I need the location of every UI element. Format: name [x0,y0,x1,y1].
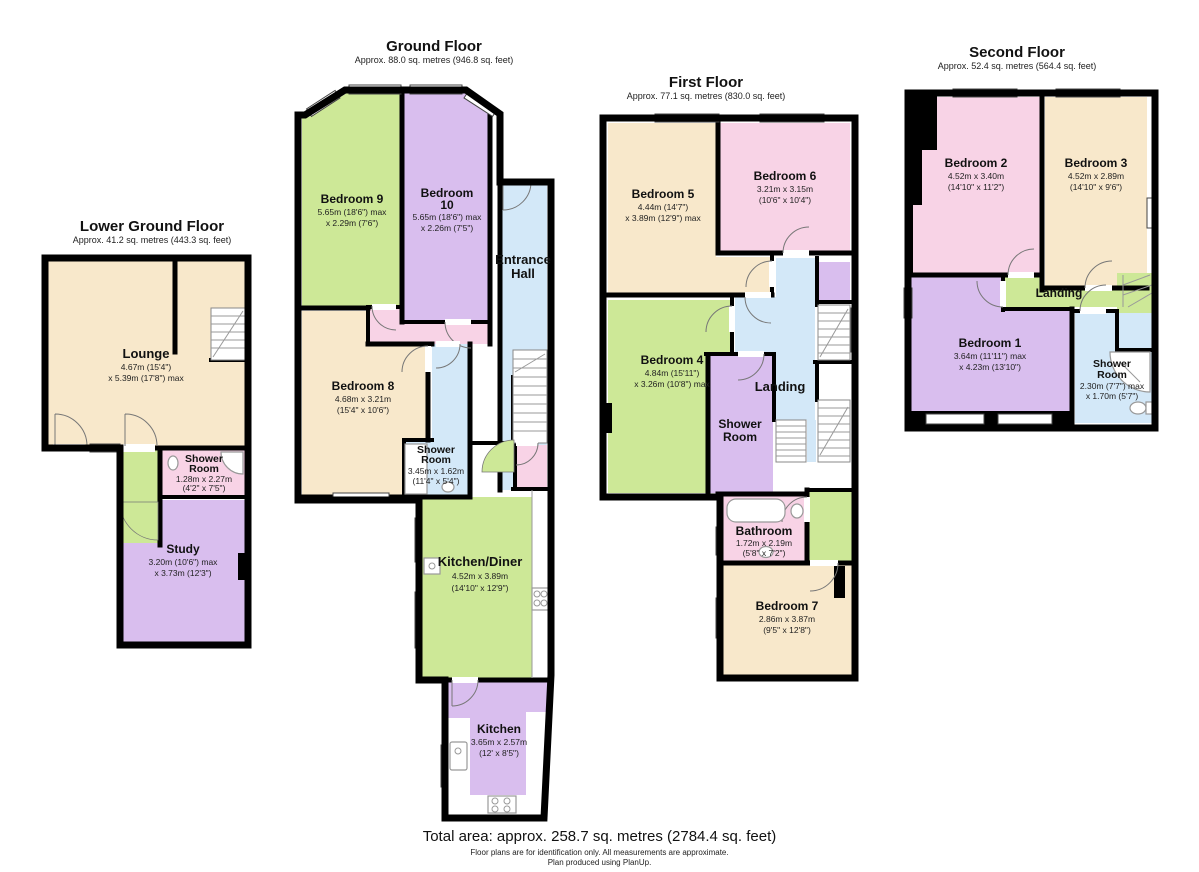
room-label-bedroom10-dim1: 5.65m (18'6") max [413,212,483,222]
landing-strip [807,420,816,462]
room-label-bedroom2-dim1: 4.52m x 3.40m [948,171,1004,181]
disclaimer-line2: Plan produced using PlanUp. [0,858,1199,867]
room-label-bedroom5-dim1: 4.44m (14'7") [638,202,689,212]
room-label-lounge-name: Lounge [123,346,170,361]
room-label-bedroom7-dim1: 2.86m x 3.87m [759,614,815,624]
room-label-study-name: Study [166,542,200,556]
room-label-bedroom1-dim1: 3.64m (11'11") max [954,351,1027,361]
room-label-showergf-dim1: 3.45m x 1.62m [408,466,464,476]
stairs-entrance [513,350,547,443]
room-label-bedroom6-name: Bedroom 6 [754,169,817,183]
stair-room-gf [515,445,547,489]
room-label-bedroom10-name2: 10 [440,198,454,212]
room-label-kitchen-dim2: (12' x 8'5") [479,748,519,758]
room-label-entrance-name1: Entrance [495,252,551,267]
room-label-bathroom-dim2: (5'8" x 7'2") [743,548,786,558]
total-area-text: Total area: approx. 258.7 sq. metres (27… [0,828,1199,845]
room-label-lounge-dim1: 4.67m (15'4") [121,362,172,372]
room-label-bedroom2-name: Bedroom 2 [945,156,1008,170]
room-label-study-dim2: x 3.73m (12'3") [154,568,211,578]
room-label-lounge-dim2: x 5.39m (17'8") max [108,373,184,383]
room-label-bedroom9-name: Bedroom 9 [321,192,384,206]
floor-plan-first: Bedroom 5 4.44m (14'7") x 3.89m (12'9") … [603,114,858,678]
room-label-bedroom1-name: Bedroom 1 [959,336,1022,350]
room-label-bedroom1-dim2: x 4.23m (13'10") [959,362,1021,372]
room-label-kitchen-name: Kitchen [477,722,521,736]
room-label-bedroom8-name: Bedroom 8 [332,379,395,393]
room-label-bathroom-name: Bathroom [736,524,793,538]
room-label-bedroom4-dim1: 4.84m (15'11") [645,368,700,378]
room-label-bedroom3-name: Bedroom 3 [1065,156,1128,170]
room-label-bedroom2-dim2: (14'10" x 11'2") [948,182,1005,192]
room-label-kitchendiner-dim1: 4.52m x 3.89m [452,571,508,581]
disclaimer-line1: Floor plans are for identification only.… [0,848,1199,857]
room-label-shower2-dim1: 2.30m (7'7") max [1080,381,1145,391]
floorplan-page: Lower Ground Floor Approx. 41.2 sq. metr… [0,0,1199,872]
room-label-shower2-dim2: x 1.70m (5'7") [1086,391,1139,401]
room-label-bedroom7-dim2: (9'5" x 12'8") [763,625,811,635]
room-label-bedroom6-dim1: 3.21m x 3.15m [757,184,813,194]
room-label-kitchendiner-dim2: (14'10" x 12'9") [451,583,508,593]
room-label-bedroom6-dim2: (10'6" x 10'4") [759,195,811,205]
room-label-bedroom7-name: Bedroom 7 [756,599,819,613]
room-label-bathroom-dim1: 1.72m x 2.19m [736,538,792,548]
stairs-lg [211,308,245,360]
stair-green-block [808,490,852,563]
room-label-bedroom10-dim2: x 2.26m (7'5") [421,223,474,233]
room-label-landing1-name: Landing [755,379,806,394]
room-label-landing2-name: Landing [1036,286,1083,300]
room-label-showergf-name2: Room [421,454,451,466]
room-label-showergf-dim2: (11'4" x 5'4") [413,476,460,486]
room-label-bedroom3-dim1: 4.52m x 2.89m [1068,171,1124,181]
stair-closet [818,262,850,302]
room-label-shower2-name2: Room [1097,369,1127,381]
room-label-bedroom9-dim2: x 2.29m (7'6") [326,218,379,228]
room-label-shower1-name2: Room [723,430,757,444]
room-label-bedroom5-name: Bedroom 5 [632,187,695,201]
room-label-bedroom8-dim2: (15'4" x 10'6") [337,405,389,415]
room-label-bedroom8-dim1: 4.68m x 3.21m [335,394,391,404]
room-label-bedroom3-dim2: (14'10" x 9'6") [1070,182,1122,192]
room-label-bedroom5-dim2: x 3.89m (12'9") max [625,213,701,223]
floor-plan-lower-ground: Lounge 4.67m (15'4") x 5.39m (17'8") max… [45,258,248,645]
room-bedroom-3 [1045,97,1147,288]
room-label-shower-dim2: (4'2" x 7'5") [183,483,226,493]
room-label-bedroom4-dim2: x 3.26m (10'8") max [634,379,710,389]
room-label-bedroom4-name: Bedroom 4 [641,353,704,367]
room-label-study-dim1: 3.20m (10'6") max [149,557,219,567]
room-label-shower1-name1: Shower [718,417,762,431]
room-label-kitchendiner-name: Kitchen/Diner [438,554,523,569]
floorplan-canvas: Lounge 4.67m (15'4") x 5.39m (17'8") max… [0,0,1199,872]
room-label-bedroom9-dim1: 5.65m (18'6") max [318,207,388,217]
room-label-entrance-name2: Hall [511,266,535,281]
floor-plan-second: Bedroom 2 4.52m x 3.40m (14'10" x 11'2")… [904,89,1155,428]
room-label-kitchen-dim1: 3.65m x 2.57m [471,737,527,747]
floor-plan-ground: Bedroom 9 5.65m (18'6") max x 2.29m (7'6… [298,85,551,818]
